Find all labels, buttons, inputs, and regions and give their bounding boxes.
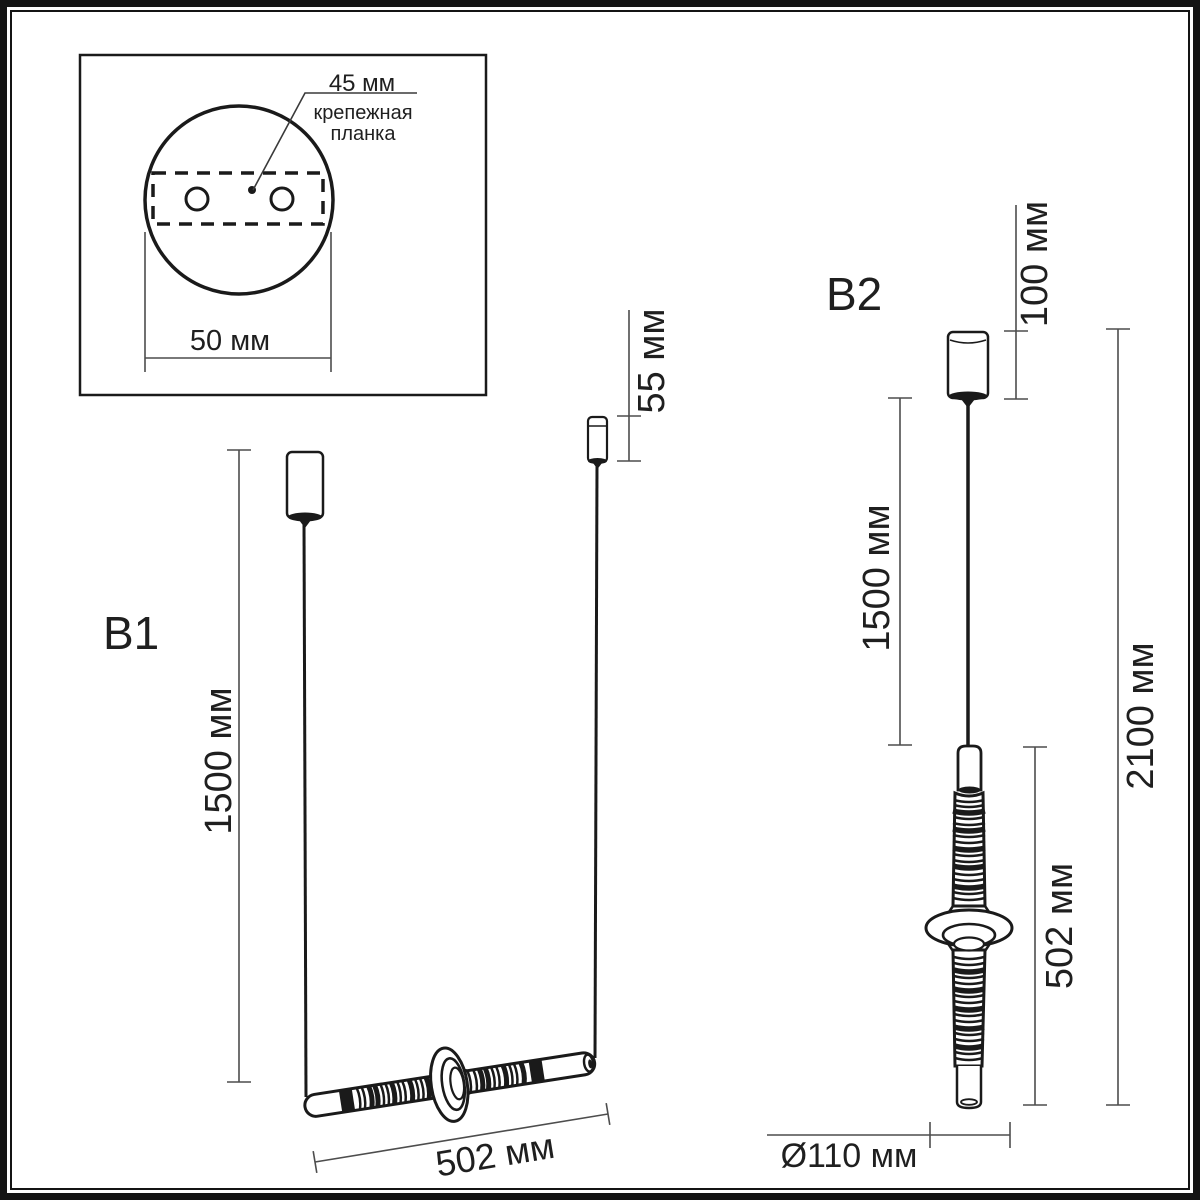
b1-lamp-length-text: 502 мм bbox=[433, 1125, 558, 1185]
b2-suspension-height-dimension: 1500 мм bbox=[856, 398, 912, 745]
b1-left-canopy bbox=[287, 452, 323, 528]
b1-right-cable bbox=[595, 465, 597, 1058]
plate-name-line2: планка bbox=[331, 123, 397, 145]
b2-label: B2 bbox=[826, 268, 882, 320]
b2-total-height-dimension: 2100 мм bbox=[1106, 329, 1162, 1105]
b2-canopy bbox=[948, 332, 988, 408]
pendant-lamp-dimension-drawing: 45 мм крепежная планка 50 мм B1 bbox=[0, 0, 1200, 1200]
b2-shade-diameter-text: Ø110 мм bbox=[781, 1137, 918, 1175]
b1-right-canopy bbox=[588, 417, 607, 469]
hole-spacing-dimension: 45 мм bbox=[329, 70, 395, 97]
b2-lamp-socket bbox=[958, 746, 981, 790]
plate-name-line1: крепежная bbox=[313, 102, 412, 124]
b1-lamp-tube bbox=[299, 1026, 600, 1144]
b2-socket-rim bbox=[959, 787, 981, 794]
b2-figure: B2 bbox=[767, 201, 1162, 1175]
b2-total-height-text: 2100 мм bbox=[1120, 642, 1162, 789]
b2-lamp-length-dimension: 502 мм bbox=[1023, 747, 1081, 1105]
b2-lamp bbox=[926, 746, 1012, 1108]
b2-canopy-height-text: 100 мм bbox=[1014, 201, 1056, 327]
b1-canopy-height-dimension: 55 мм bbox=[617, 308, 673, 461]
b1-label: B1 bbox=[103, 607, 159, 659]
mount-hole-right bbox=[271, 188, 293, 210]
canopy-plate-circle bbox=[145, 106, 333, 294]
mount-hole-left bbox=[186, 188, 208, 210]
b1-suspension-height-text: 1500 мм bbox=[198, 687, 240, 834]
b2-lamp-length-text: 502 мм bbox=[1039, 863, 1081, 989]
b1-canopy-height-text: 55 мм bbox=[631, 308, 673, 413]
b2-shade-diameter-dimension: Ø110 мм bbox=[767, 1122, 1010, 1175]
technical-drawing-page: 45 мм крепежная планка 50 мм B1 bbox=[0, 0, 1200, 1200]
b2-shade-inner bbox=[954, 938, 984, 951]
b2-suspension-height-text: 1500 мм bbox=[856, 504, 898, 651]
b1-left-cable bbox=[304, 523, 306, 1097]
b1-figure: B1 bbox=[103, 308, 673, 1184]
plate-width-text: 50 мм bbox=[190, 325, 270, 357]
b2-canopy-height-dimension: 100 мм bbox=[1004, 201, 1056, 399]
inset-mount-plate-view: 45 мм крепежная планка 50 мм bbox=[80, 55, 486, 395]
b1-suspension-height-dimension: 1500 мм bbox=[198, 450, 251, 1082]
